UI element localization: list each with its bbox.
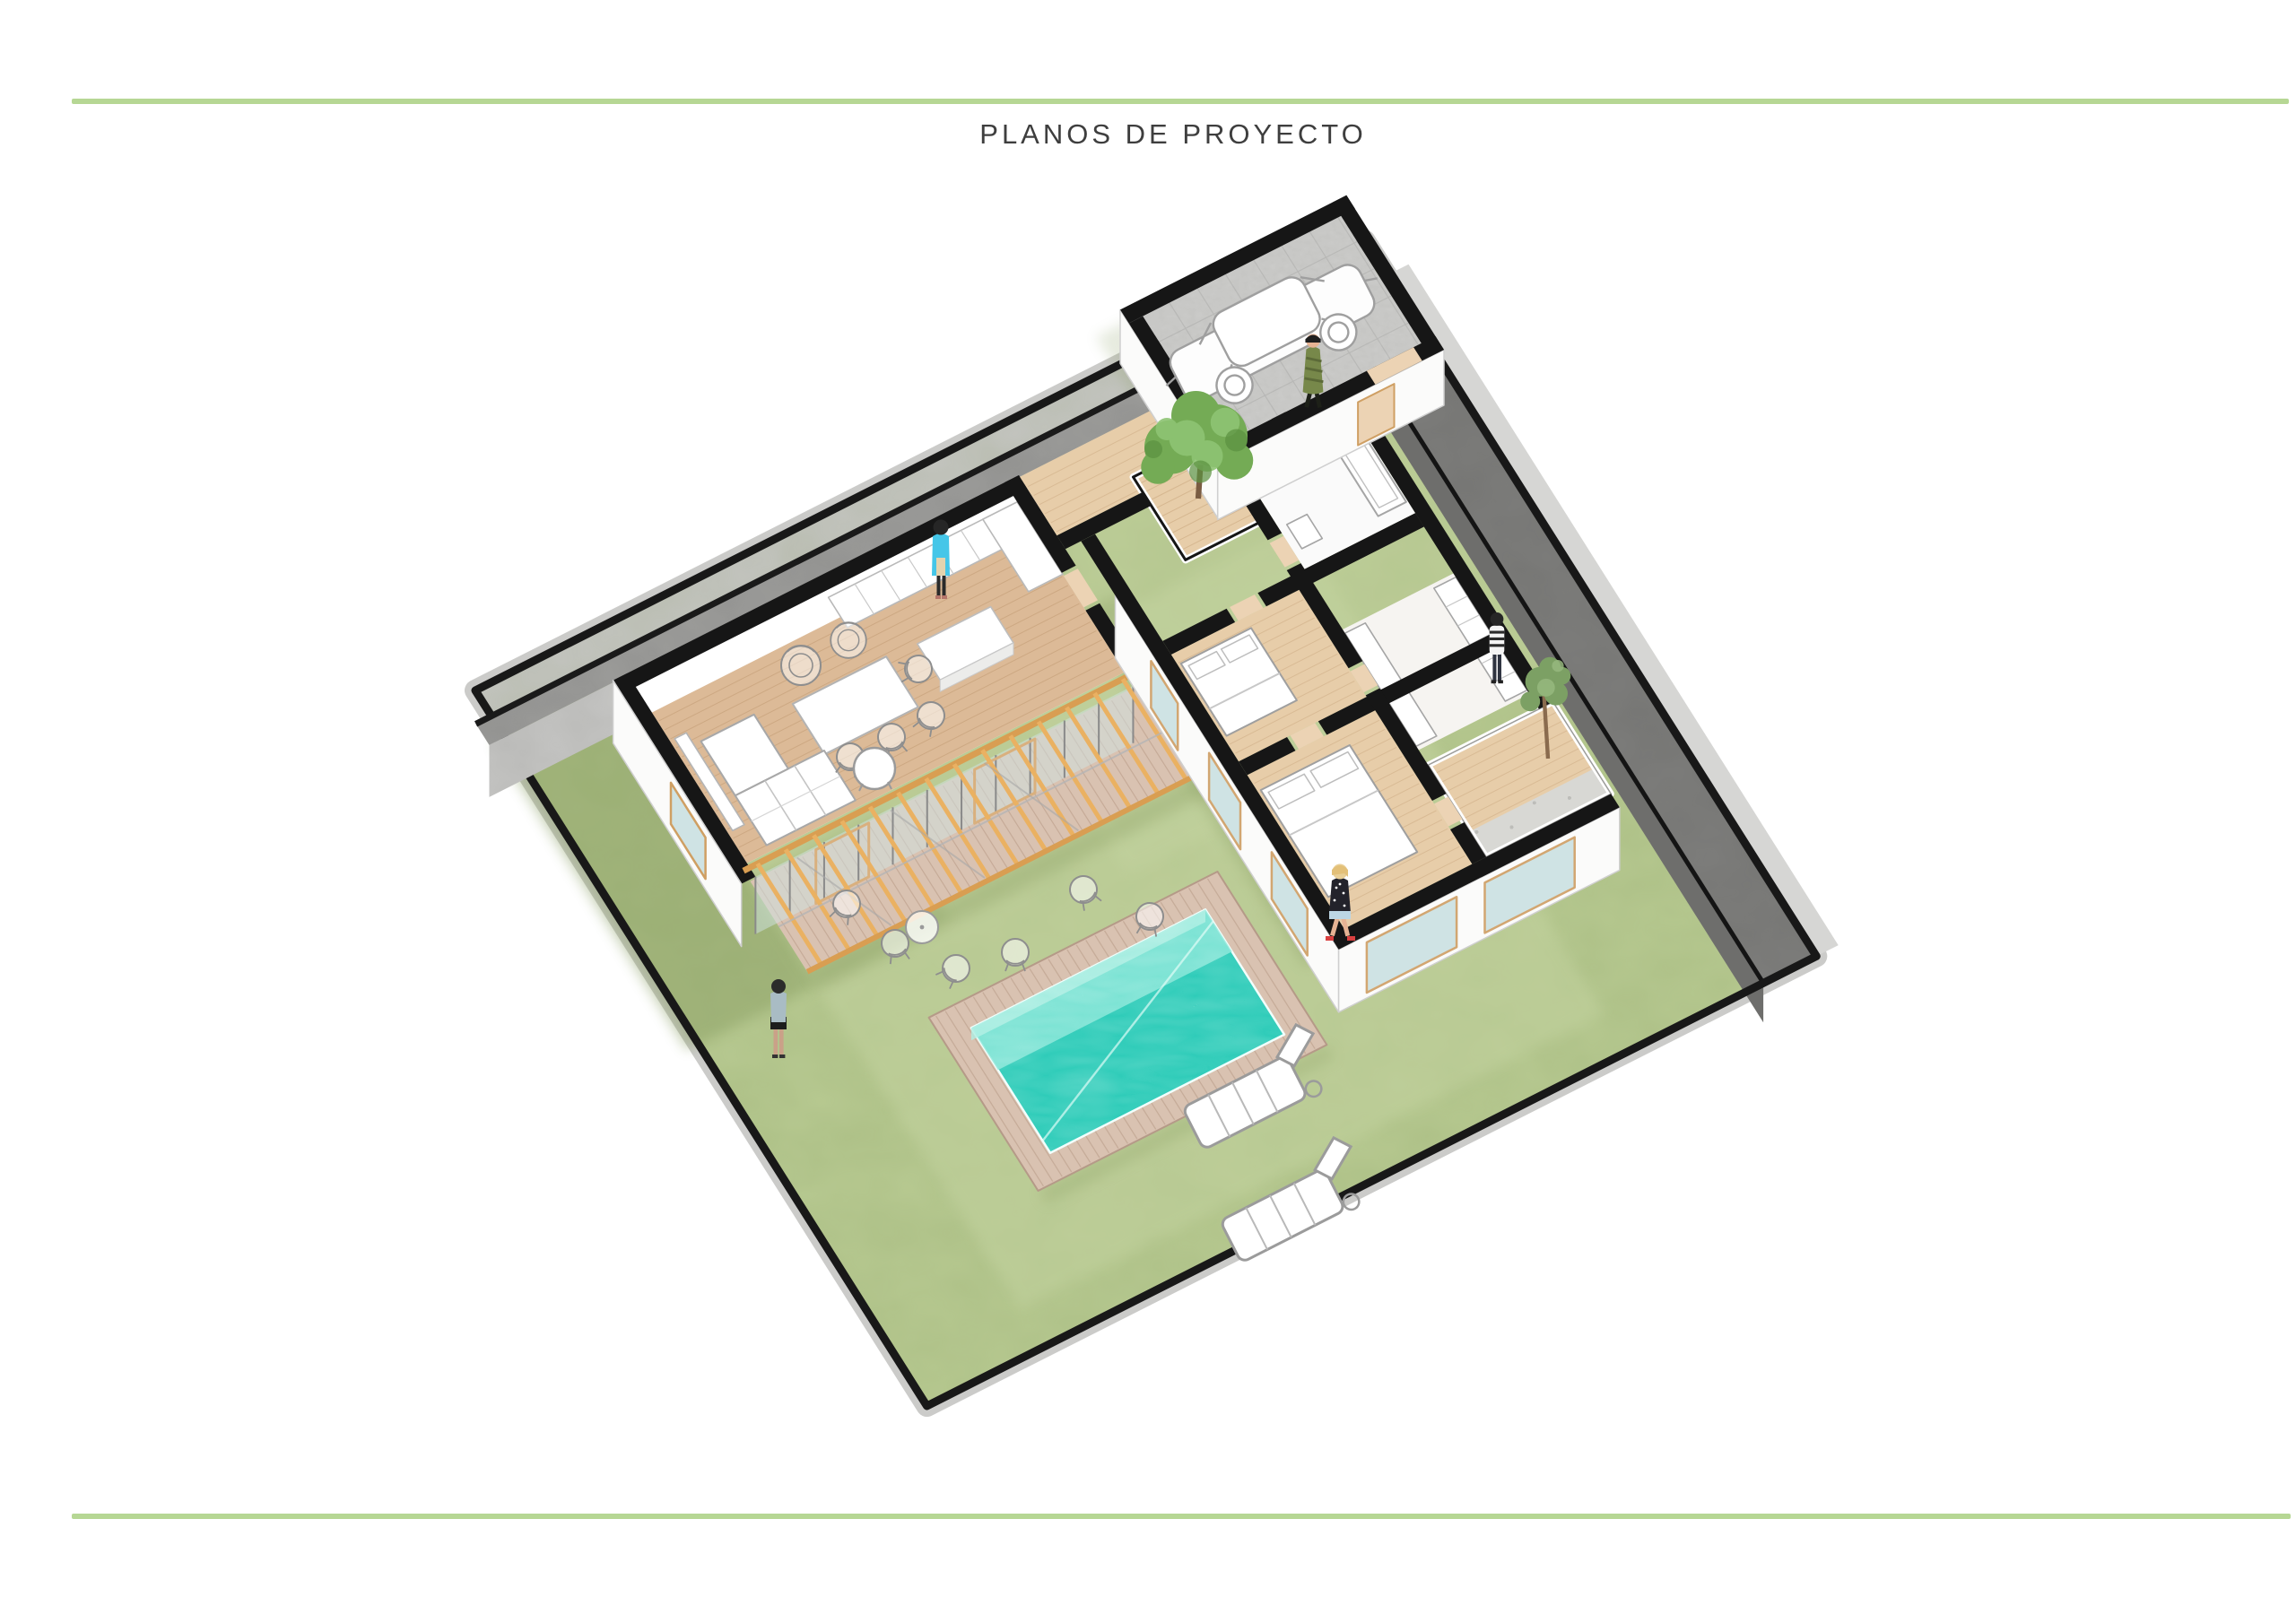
page-title: PLANOS DE PROYECTO — [979, 118, 1366, 150]
gravel-dot — [1533, 801, 1536, 804]
garden-table — [906, 911, 938, 943]
gravel-dot — [1475, 830, 1479, 834]
project-plan-figure: PLANOS DE PROYECTO — [0, 0, 2296, 1623]
gravel-dot — [1510, 826, 1514, 829]
egg-chair — [781, 646, 821, 685]
gravel-dot — [1568, 796, 1571, 800]
egg-chair — [831, 622, 866, 658]
top-divider-line — [72, 99, 2289, 104]
presentation-page: PLANOS DE PROYECTO — [0, 0, 2296, 1623]
bottom-divider-line — [72, 1514, 2291, 1519]
